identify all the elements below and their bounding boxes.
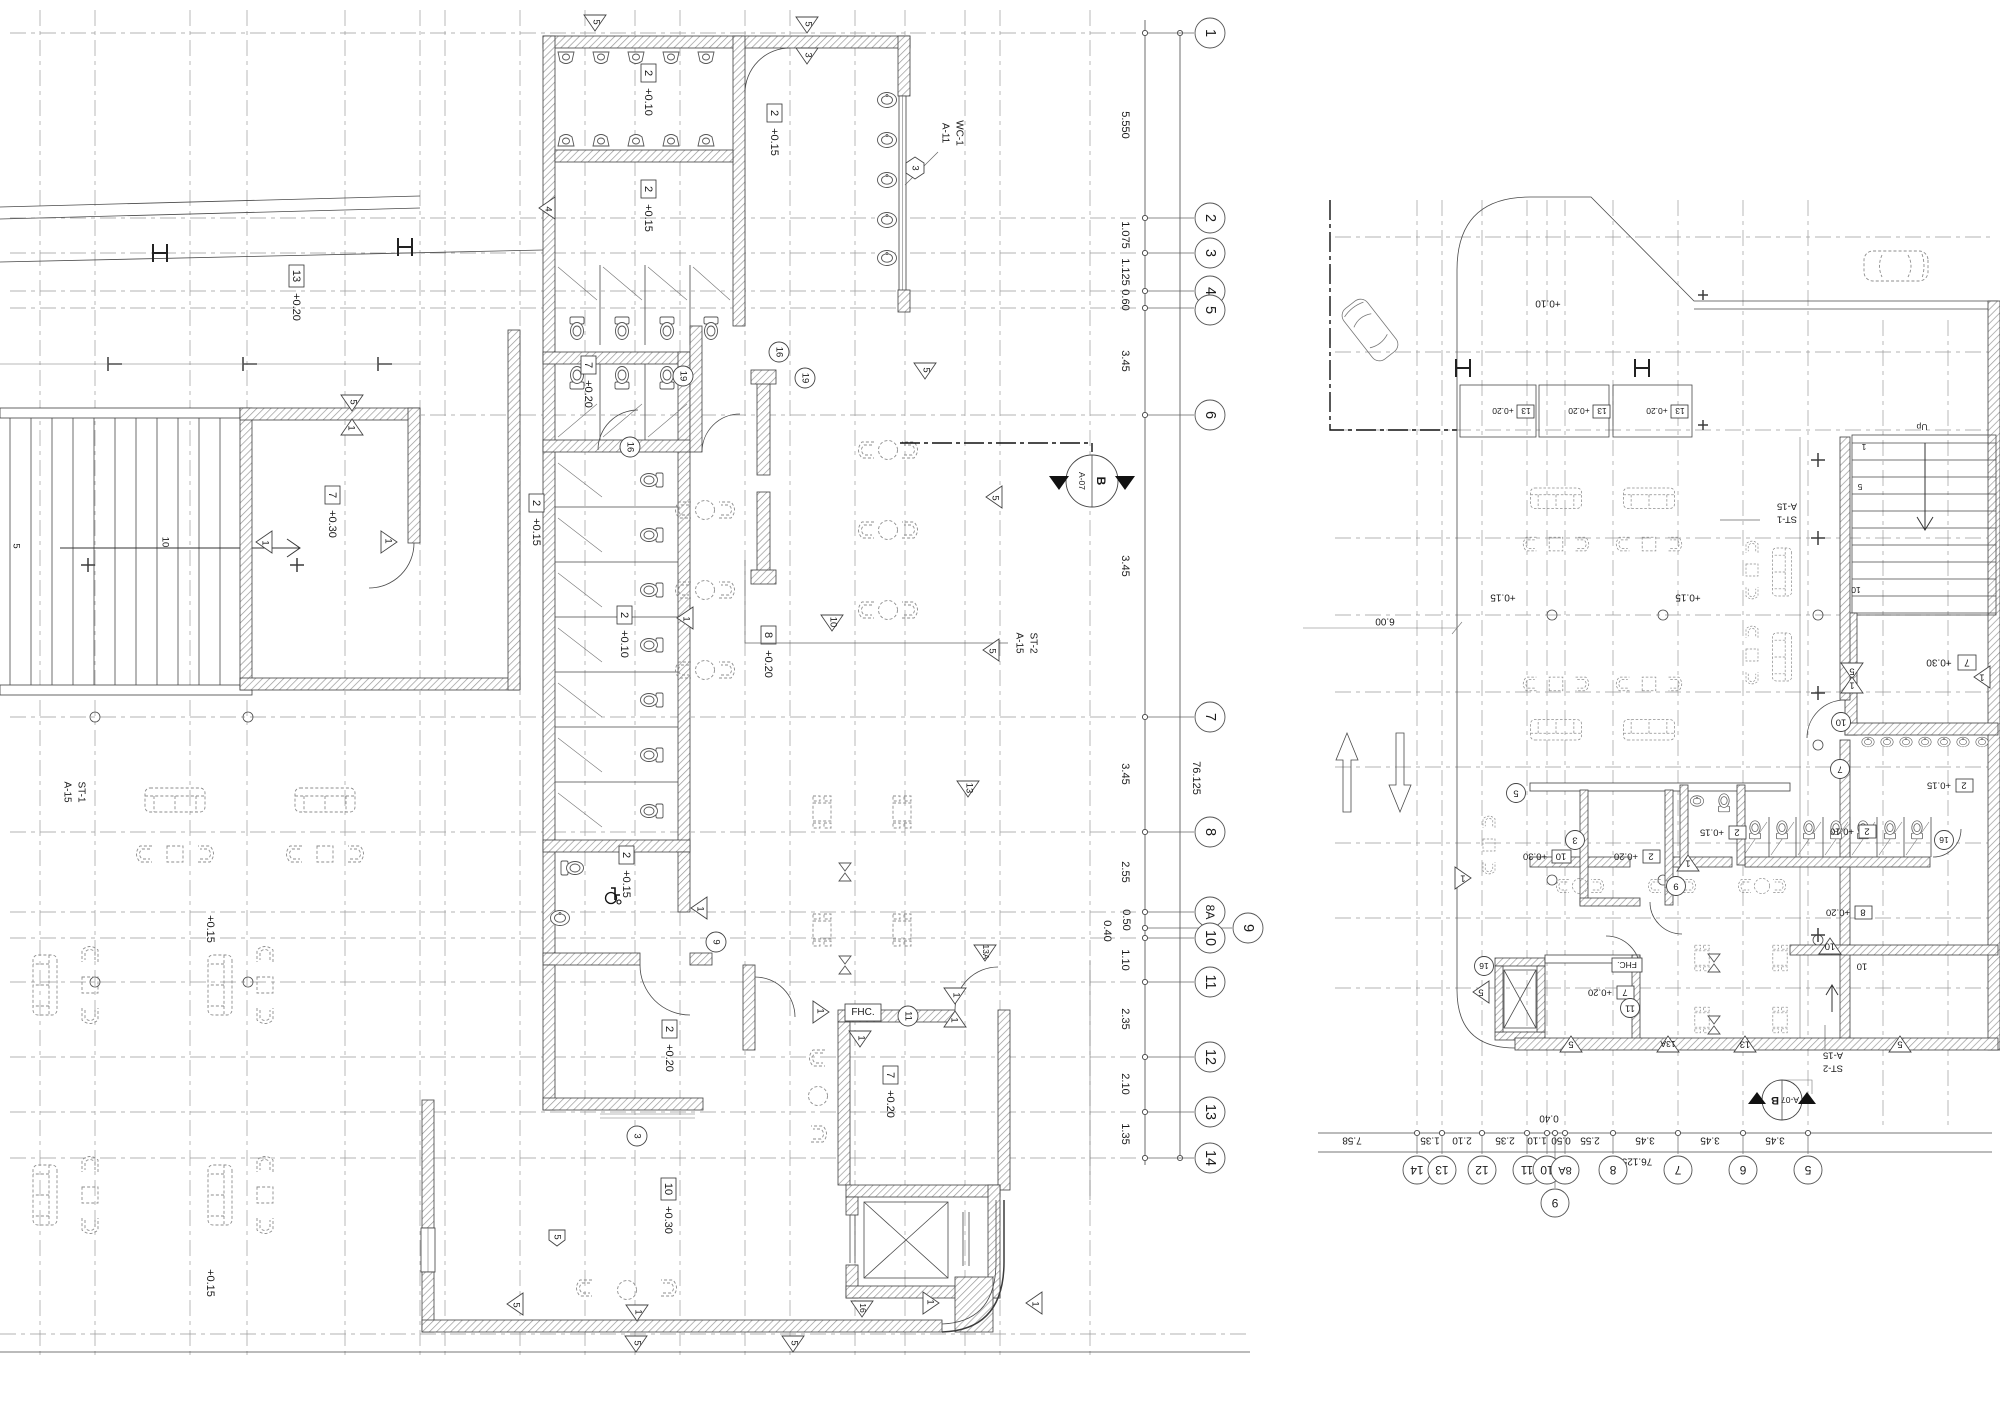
stair-tread-number: 5 [11, 543, 22, 548]
svg-text:1.075: 1.075 [1119, 221, 1131, 249]
svg-text:2.35: 2.35 [1495, 1135, 1515, 1146]
svg-text:2: 2 [642, 70, 654, 76]
svg-text:11: 11 [1520, 1163, 1533, 1177]
svg-text:8: 8 [1860, 907, 1865, 918]
svg-text:10: 10 [1851, 585, 1861, 595]
svg-text:6: 6 [1739, 1163, 1746, 1177]
grid-bubble: 11 [1195, 967, 1225, 997]
svg-text:1: 1 [1460, 873, 1465, 884]
svg-text:8A: 8A [1558, 1164, 1572, 1176]
section-letter: B [1094, 477, 1108, 486]
svg-text:+0.20: +0.20 [1588, 987, 1612, 998]
svg-text:1: 1 [695, 906, 706, 911]
room-label: 10+0.30 [661, 1178, 676, 1234]
svg-text:1.35: 1.35 [1119, 1123, 1131, 1144]
svg-text:12: 12 [1202, 1049, 1218, 1065]
svg-text:6: 6 [1202, 411, 1218, 419]
room-label: 7+0.30 [325, 486, 340, 538]
svg-text:5: 5 [803, 21, 814, 26]
svg-text:13: 13 [1521, 406, 1531, 416]
grid-bubble: 9 [1541, 1189, 1569, 1217]
room-label: 13+0.20 [1646, 405, 1688, 418]
svg-text:+0.20: +0.20 [1614, 851, 1638, 862]
svg-text:1: 1 [925, 1299, 936, 1304]
svg-text:5: 5 [632, 1340, 643, 1345]
svg-text:5: 5 [990, 495, 1001, 500]
svg-text:+0.15: +0.15 [1490, 592, 1516, 603]
svg-text:7: 7 [1202, 713, 1218, 721]
room-label: 2+0.15 [767, 104, 782, 156]
svg-text:3: 3 [910, 165, 921, 170]
room-label: 2+0.15 [1927, 779, 1973, 792]
svg-text:3: 3 [1572, 835, 1577, 846]
svg-text:0.40: 0.40 [1539, 1113, 1559, 1124]
svg-text:+0.15: +0.15 [768, 128, 780, 156]
svg-text:ST-2: ST-2 [1823, 1063, 1843, 1074]
svg-text:2: 2 [620, 852, 632, 858]
grid-bubble: 6 [1729, 1156, 1757, 1184]
svg-text:1: 1 [1861, 442, 1866, 452]
svg-text:19: 19 [678, 371, 689, 382]
fhc-label: FHC. [1617, 960, 1637, 970]
grid-bubble: 12 [1195, 1042, 1225, 1072]
level-label: +0.15 [1675, 592, 1701, 603]
svg-text:+0.30: +0.30 [326, 510, 338, 538]
svg-text:2.10: 2.10 [1119, 1073, 1131, 1094]
grid-bubble: 8 [1195, 817, 1225, 847]
svg-text:+0.10: +0.10 [618, 630, 630, 658]
svg-text:5: 5 [591, 19, 602, 24]
svg-text:1.125: 1.125 [1119, 258, 1131, 286]
svg-text:13: 13 [1435, 1163, 1449, 1177]
svg-text:1: 1 [949, 1017, 960, 1022]
svg-text:2.35: 2.35 [1119, 1008, 1131, 1029]
svg-text:1: 1 [815, 1008, 826, 1013]
svg-text:0.60: 0.60 [1119, 289, 1131, 310]
svg-text:10: 10 [828, 617, 839, 628]
svg-text:7: 7 [1674, 1163, 1681, 1177]
svg-text:A-15: A-15 [62, 781, 73, 803]
room-label: 13+0.20 [1568, 405, 1610, 418]
svg-text:16: 16 [625, 442, 636, 453]
svg-text:5: 5 [1202, 306, 1218, 314]
svg-text:2: 2 [1961, 780, 1966, 791]
svg-text:1.35: 1.35 [1420, 1135, 1440, 1146]
svg-text:10: 10 [1825, 941, 1836, 952]
svg-text:13A: 13A [1660, 1039, 1675, 1049]
grid-bubble: 8A [1551, 1156, 1579, 1184]
right-elevator [1495, 958, 1545, 1040]
svg-text:7: 7 [884, 1072, 896, 1078]
grid-bubble: 1 [1195, 18, 1225, 48]
stair-tread-number: 10 [160, 537, 171, 548]
svg-text:A-11: A-11 [940, 123, 951, 144]
room-label: 2+0.15 [641, 180, 656, 232]
level-label: +0.15 [1490, 592, 1516, 603]
svg-text:3: 3 [803, 52, 814, 57]
svg-text:3.45: 3.45 [1700, 1135, 1720, 1146]
svg-text:13: 13 [290, 270, 302, 282]
svg-text:9: 9 [711, 939, 722, 944]
svg-text:11: 11 [903, 1011, 914, 1021]
svg-text:2.55: 2.55 [1580, 1135, 1600, 1146]
room-label: 2+0.15 [529, 494, 544, 546]
grid-bubble: 8A [1195, 897, 1225, 927]
grid-bubble: 10 [1195, 923, 1225, 953]
svg-text:10: 10 [1202, 930, 1218, 946]
svg-text:1: 1 [856, 1035, 867, 1040]
svg-text:7: 7 [326, 492, 338, 498]
svg-text:1: 1 [951, 992, 962, 997]
svg-text:2: 2 [768, 110, 780, 116]
grid-bubble: 7 [1664, 1156, 1692, 1184]
svg-text:13: 13 [1740, 1039, 1751, 1050]
svg-text:+0.10: +0.10 [1830, 826, 1854, 837]
svg-text:3.45: 3.45 [1765, 1135, 1785, 1146]
svg-text:1: 1 [260, 540, 271, 545]
svg-text:13A: 13A [981, 944, 991, 959]
svg-text:+0.15: +0.15 [204, 915, 216, 943]
svg-text:4: 4 [1202, 287, 1218, 295]
svg-text:7.58: 7.58 [1342, 1135, 1362, 1146]
svg-text:10: 10 [662, 1183, 674, 1195]
svg-text:+0.15: +0.15 [1675, 592, 1701, 603]
svg-text:1: 1 [633, 1309, 644, 1314]
svg-text:2.10: 2.10 [1452, 1135, 1472, 1146]
svg-text:16: 16 [1479, 961, 1489, 971]
svg-text:+0.30: +0.30 [662, 1206, 674, 1234]
svg-text:3: 3 [632, 1133, 643, 1138]
svg-text:+0.20: +0.20 [884, 1090, 896, 1118]
svg-text:5: 5 [1849, 666, 1854, 677]
grid-bubble: 14 [1403, 1156, 1431, 1184]
svg-text:13: 13 [1675, 406, 1685, 416]
grid-bubble: 12 [1468, 1156, 1496, 1184]
svg-text:6.00: 6.00 [1375, 616, 1395, 627]
svg-text:1: 1 [1030, 1301, 1041, 1306]
svg-text:3: 3 [1202, 249, 1218, 257]
grid-bubble: 7 [1195, 702, 1225, 732]
svg-text:+0.10: +0.10 [1535, 298, 1561, 309]
room-label: 7+0.30 [1926, 655, 1976, 670]
grid-bubble: 2 [1195, 203, 1225, 233]
stair-up-label: Up [1916, 422, 1927, 432]
svg-text:16: 16 [774, 347, 785, 358]
svg-text:5: 5 [348, 399, 359, 404]
room-label: 2+0.15 [619, 846, 634, 898]
svg-text:13: 13 [964, 783, 975, 794]
svg-text:19: 19 [800, 373, 811, 384]
svg-text:+0.15: +0.15 [530, 518, 542, 546]
svg-text:11: 11 [1202, 974, 1218, 989]
svg-text:4: 4 [543, 206, 554, 211]
room-label: 2+0.10 [617, 606, 632, 658]
grid-bubble: 13 [1428, 1156, 1456, 1184]
svg-text:1.10: 1.10 [1527, 1135, 1547, 1146]
svg-text:1: 1 [1979, 672, 1984, 683]
svg-text:8: 8 [1202, 828, 1218, 836]
svg-text:3.45: 3.45 [1119, 555, 1131, 576]
svg-text:+0.20: +0.20 [582, 380, 594, 408]
svg-text:WC-1: WC-1 [954, 120, 965, 146]
svg-text:0.40: 0.40 [1101, 920, 1113, 941]
svg-text:7: 7 [1837, 764, 1842, 775]
grid-bubble: 5 [1195, 295, 1225, 325]
svg-text:5: 5 [921, 367, 932, 372]
svg-text:ST-1: ST-1 [1777, 514, 1797, 525]
svg-text:2: 2 [1202, 214, 1218, 222]
svg-text:+0.20: +0.20 [1492, 406, 1514, 416]
svg-text:+0.10: +0.10 [642, 88, 654, 116]
svg-text:+0.30: +0.30 [1926, 657, 1952, 668]
blueprint-canvas: 5 10 [0, 0, 2000, 1413]
svg-text:8A: 8A [1203, 905, 1217, 920]
room-label: 13+0.20 [289, 265, 304, 321]
total-dimension: 76.125 [1190, 761, 1202, 795]
svg-text:2: 2 [1648, 851, 1653, 862]
room-label: 13+0.20 [1492, 405, 1534, 418]
room-label: 2+0.10 [1830, 825, 1876, 838]
svg-text:+0.20: +0.20 [1646, 406, 1668, 416]
svg-text:0.50: 0.50 [1551, 1135, 1571, 1146]
svg-text:16: 16 [1939, 835, 1949, 845]
svg-text:14: 14 [1410, 1163, 1424, 1177]
room-label: 7+0.20 [581, 356, 596, 408]
svg-text:5: 5 [1568, 1039, 1573, 1050]
svg-text:7: 7 [1622, 987, 1627, 998]
room-label: 2+0.20 [1614, 850, 1660, 863]
svg-text:9: 9 [1673, 881, 1678, 892]
room-label: 8+0.20 [761, 626, 776, 678]
floor-plan-sheet: 5 10 [0, 0, 2000, 1413]
room-label: 10+0.30 [1523, 850, 1571, 863]
svg-text:16: 16 [858, 1303, 868, 1313]
svg-text:+0.30: +0.30 [1523, 851, 1547, 862]
room-label: 7+0.20 [883, 1066, 898, 1118]
grid-bubble: 6 [1195, 400, 1225, 430]
svg-text:3.45: 3.45 [1119, 763, 1131, 784]
level-label: +0.15 [204, 1269, 216, 1297]
svg-text:+0.15: +0.15 [204, 1269, 216, 1297]
room-label: 7+0.20 [1588, 986, 1634, 999]
svg-text:+0.15: +0.15 [620, 870, 632, 898]
svg-text:10: 10 [1836, 717, 1847, 728]
svg-text:5: 5 [1478, 987, 1483, 998]
grid-bubble: 5 [1794, 1156, 1822, 1184]
svg-text:2: 2 [642, 186, 654, 192]
fhc-label: FHC. [851, 1007, 874, 1018]
svg-text:+0.15: +0.15 [1700, 827, 1724, 838]
svg-text:+0.20: +0.20 [1568, 406, 1590, 416]
svg-text:+0.20: +0.20 [1826, 907, 1850, 918]
svg-text:2: 2 [1734, 827, 1739, 838]
svg-text:7: 7 [582, 362, 594, 368]
svg-text:+0.20: +0.20 [663, 1044, 675, 1072]
tag-label: 10 [1857, 961, 1868, 972]
svg-text:2: 2 [618, 612, 630, 618]
svg-text:2: 2 [663, 1026, 675, 1032]
svg-text:+0.15: +0.15 [1927, 780, 1951, 791]
room-label: 2+0.15 [1700, 826, 1746, 839]
svg-text:3.45: 3.45 [1119, 350, 1131, 371]
svg-text:1: 1 [681, 616, 692, 621]
svg-text:8: 8 [762, 632, 774, 638]
svg-text:ST-2: ST-2 [1028, 632, 1039, 654]
svg-text:1: 1 [346, 425, 357, 430]
svg-text:1: 1 [383, 538, 394, 543]
svg-text:A-07: A-07 [1781, 1095, 1799, 1105]
svg-text:1: 1 [1685, 858, 1690, 869]
svg-text:A-15: A-15 [1823, 1050, 1843, 1061]
svg-text:0.50: 0.50 [1120, 909, 1132, 930]
svg-text:7: 7 [1964, 657, 1970, 668]
grid-bubble: 14 [1195, 1143, 1225, 1173]
svg-text:+0.20: +0.20 [290, 293, 302, 321]
grid-bubble: 8 [1599, 1156, 1627, 1184]
svg-text:14: 14 [1202, 1150, 1218, 1166]
svg-text:5: 5 [511, 1302, 522, 1307]
svg-text:A-15: A-15 [1014, 632, 1025, 654]
svg-text:A-15: A-15 [1777, 501, 1797, 512]
svg-text:5: 5 [1857, 482, 1862, 492]
svg-text:2: 2 [1864, 826, 1869, 837]
svg-text:13: 13 [1202, 1104, 1218, 1120]
svg-text:2.55: 2.55 [1119, 861, 1131, 882]
svg-text:10: 10 [1556, 851, 1567, 862]
svg-text:13: 13 [1597, 406, 1607, 416]
grid-bubble: 3 [1195, 238, 1225, 268]
svg-text:2: 2 [530, 500, 542, 506]
svg-text:1: 1 [1202, 29, 1218, 37]
svg-text:8: 8 [1609, 1163, 1616, 1177]
svg-text:5: 5 [552, 1234, 563, 1239]
svg-text:5: 5 [1513, 788, 1518, 799]
svg-text:+0.15: +0.15 [642, 204, 654, 232]
svg-text:9: 9 [1551, 1196, 1558, 1210]
grid-bubble: 13 [1195, 1097, 1225, 1127]
level-label: +0.15 [204, 915, 216, 943]
svg-text:B: B [1771, 1094, 1779, 1106]
svg-text:12: 12 [1475, 1163, 1489, 1177]
svg-text:1.10: 1.10 [1119, 949, 1131, 970]
svg-text:5.550: 5.550 [1119, 111, 1131, 139]
svg-text:5: 5 [1804, 1163, 1811, 1177]
svg-text:5: 5 [987, 648, 998, 653]
svg-text:5: 5 [1897, 1039, 1902, 1050]
svg-text:+0.20: +0.20 [762, 650, 774, 678]
svg-text:3.45: 3.45 [1635, 1135, 1655, 1146]
grid-bubble: 9 [1233, 913, 1263, 943]
svg-text:9: 9 [1240, 924, 1256, 932]
svg-text:11: 11 [1625, 1003, 1635, 1014]
svg-text:ST-1: ST-1 [76, 781, 87, 803]
room-label: 2+0.20 [662, 1020, 677, 1072]
section-sheet: A-07 [1077, 472, 1087, 490]
room-label: 2+0.10 [641, 64, 656, 116]
level-label: +0.10 [1535, 298, 1561, 309]
room-label: 8+0.20 [1826, 906, 1872, 919]
svg-text:1: 1 [1849, 680, 1854, 691]
svg-text:5: 5 [789, 1340, 800, 1345]
